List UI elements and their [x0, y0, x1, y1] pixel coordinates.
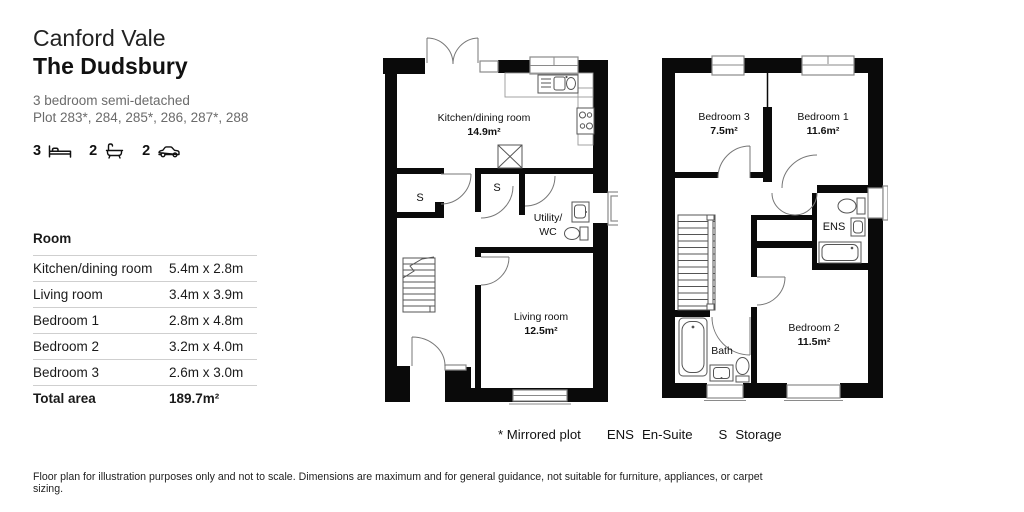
room-name: Kitchen/dining room — [33, 261, 169, 276]
room-dims: 3.4m x 3.9m — [169, 287, 257, 302]
first-floor-drawing: Bedroom 3 7.5m² Bedroom 1 11.6m² ENS Bat… — [656, 52, 888, 404]
ensuite-window — [868, 188, 883, 218]
utility-label-2: WC — [539, 226, 557, 238]
kitchen-area: 14.9m² — [467, 126, 501, 138]
legend-ens-label: En-Suite — [642, 427, 693, 442]
ensuite-toilet-icon — [838, 198, 865, 214]
spec-row: 3 2 2 — [33, 142, 343, 160]
bedroom1-label: Bedroom 1 — [797, 111, 849, 123]
room-dimensions-table: Room Kitchen/dining room 5.4m x 2.8m Liv… — [33, 231, 257, 411]
table-row: Bedroom 3 2.6m x 3.0m — [33, 359, 257, 385]
disclaimer-text: Floor plan for illustration purposes onl… — [33, 471, 773, 495]
living-room-label: Living room — [514, 311, 569, 323]
bedroom2-label: Bedroom 2 — [788, 322, 840, 334]
sink-icon — [538, 75, 578, 93]
legend-storage-abbr: S — [719, 427, 728, 442]
room-name: Bedroom 3 — [33, 365, 169, 380]
room-dims: 5.4m x 2.8m — [169, 261, 257, 276]
ensuite-basin-icon — [851, 218, 865, 236]
ground-floor-plan: Kitchen/dining room 14.9m² S S Utility/ … — [378, 16, 618, 417]
bath-icon — [104, 142, 125, 160]
bathroom-count: 2 — [89, 143, 97, 159]
table-row: Living room 3.4m x 3.9m — [33, 281, 257, 307]
utility-basin-icon — [572, 202, 589, 222]
table-total-row: Total area 189.7m² — [33, 385, 257, 411]
legend-storage-label: Storage — [735, 427, 781, 442]
spec-parking: 2 — [142, 143, 181, 159]
spec-bedrooms: 3 — [33, 143, 72, 159]
bathtub-icon — [679, 318, 707, 376]
spec-bathrooms: 2 — [89, 142, 125, 160]
bath-toilet-icon — [736, 358, 749, 383]
table-header: Room — [33, 231, 257, 255]
legend-ens-abbr: ENS — [607, 427, 634, 442]
total-label: Total area — [33, 391, 169, 406]
plot-numbers: Plot 283*, 284, 285*, 286, 287*, 288 — [33, 109, 343, 126]
table-row: Bedroom 1 2.8m x 4.8m — [33, 307, 257, 333]
total-value: 189.7m² — [169, 391, 257, 406]
home-type: 3 bedroom semi-detached — [33, 92, 343, 109]
legend: * Mirrored plot ENS En-Suite S Storage — [498, 427, 782, 442]
utility-label: Utility/ — [534, 212, 563, 224]
sidebar: Canford Vale The Dudsbury 3 bedroom semi… — [33, 24, 343, 160]
bath-basin-icon — [710, 365, 733, 381]
living-room-area: 12.5m² — [524, 325, 558, 337]
utility-toilet-icon — [565, 227, 589, 240]
home-name: The Dudsbury — [33, 52, 343, 80]
storage-label: S — [416, 192, 423, 204]
room-name: Living room — [33, 287, 169, 302]
ensuite-label: ENS — [823, 221, 846, 233]
bed-icon — [48, 143, 72, 159]
bedroom3-area: 7.5m² — [710, 125, 738, 137]
bedroom3-label: Bedroom 3 — [698, 111, 750, 123]
table-row: Bedroom 2 3.2m x 4.0m — [33, 333, 257, 359]
room-dims: 2.6m x 3.0m — [169, 365, 257, 380]
car-icon — [157, 144, 181, 159]
parking-count: 2 — [142, 143, 150, 159]
first-floor-stairs — [678, 215, 715, 310]
ground-floor-drawing: Kitchen/dining room 14.9m² S S Utility/ … — [378, 16, 618, 412]
table-row: Kitchen/dining room 5.4m x 2.8m — [33, 255, 257, 281]
hob-icon — [577, 108, 594, 134]
development-name: Canford Vale — [33, 24, 343, 52]
kitchen-label: Kitchen/dining room — [438, 112, 531, 124]
bedroom1-area: 11.6m² — [807, 125, 840, 137]
room-dims: 3.2m x 4.0m — [169, 339, 257, 354]
room-name: Bedroom 1 — [33, 313, 169, 328]
ground-floor-stairs — [403, 257, 435, 312]
first-floor-plan: Bedroom 3 7.5m² Bedroom 1 11.6m² ENS Bat… — [656, 52, 888, 409]
room-name: Bedroom 2 — [33, 339, 169, 354]
room-dims: 2.8m x 4.8m — [169, 313, 257, 328]
bedroom-count: 3 — [33, 143, 41, 159]
duct-symbol — [498, 145, 522, 168]
legend-mirrored: * Mirrored plot — [498, 427, 581, 442]
storage-label: S — [493, 182, 500, 194]
bedroom2-area: 11.5m² — [798, 336, 831, 348]
shower-icon — [819, 242, 861, 263]
bath-label: Bath — [711, 345, 733, 357]
